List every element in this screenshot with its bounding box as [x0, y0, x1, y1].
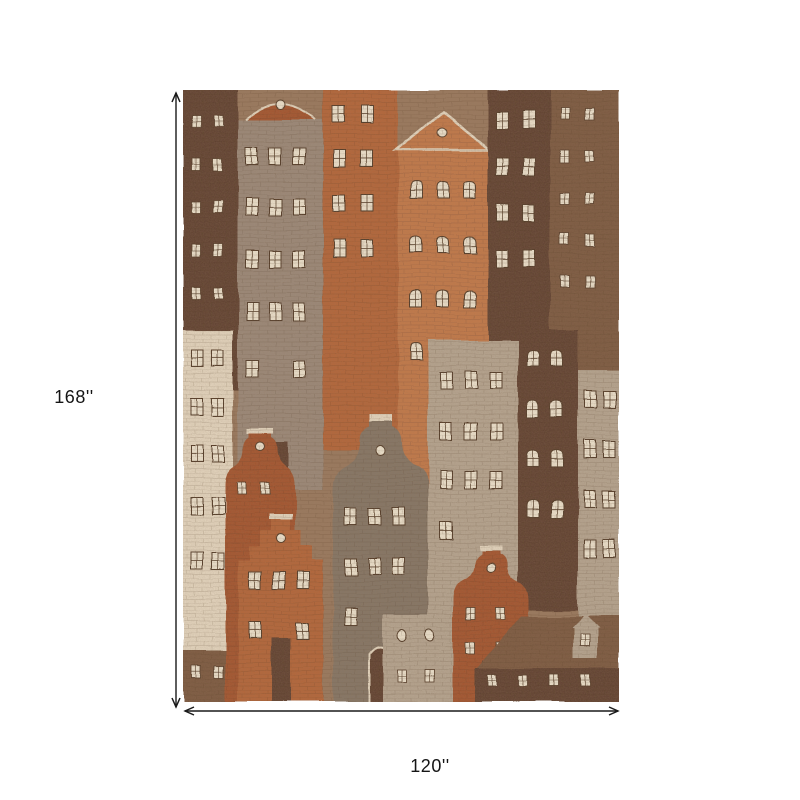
rug-pattern-svg: [183, 90, 619, 702]
width-dimension-label: 120'': [392, 756, 468, 777]
product-dimension-diagram: 168'' 120'': [0, 0, 800, 800]
brick-texture-overlay: [183, 90, 619, 702]
rug-product-image: [183, 90, 619, 702]
height-dimension-label: 168'': [36, 387, 112, 408]
rug-buildings: [183, 90, 619, 702]
